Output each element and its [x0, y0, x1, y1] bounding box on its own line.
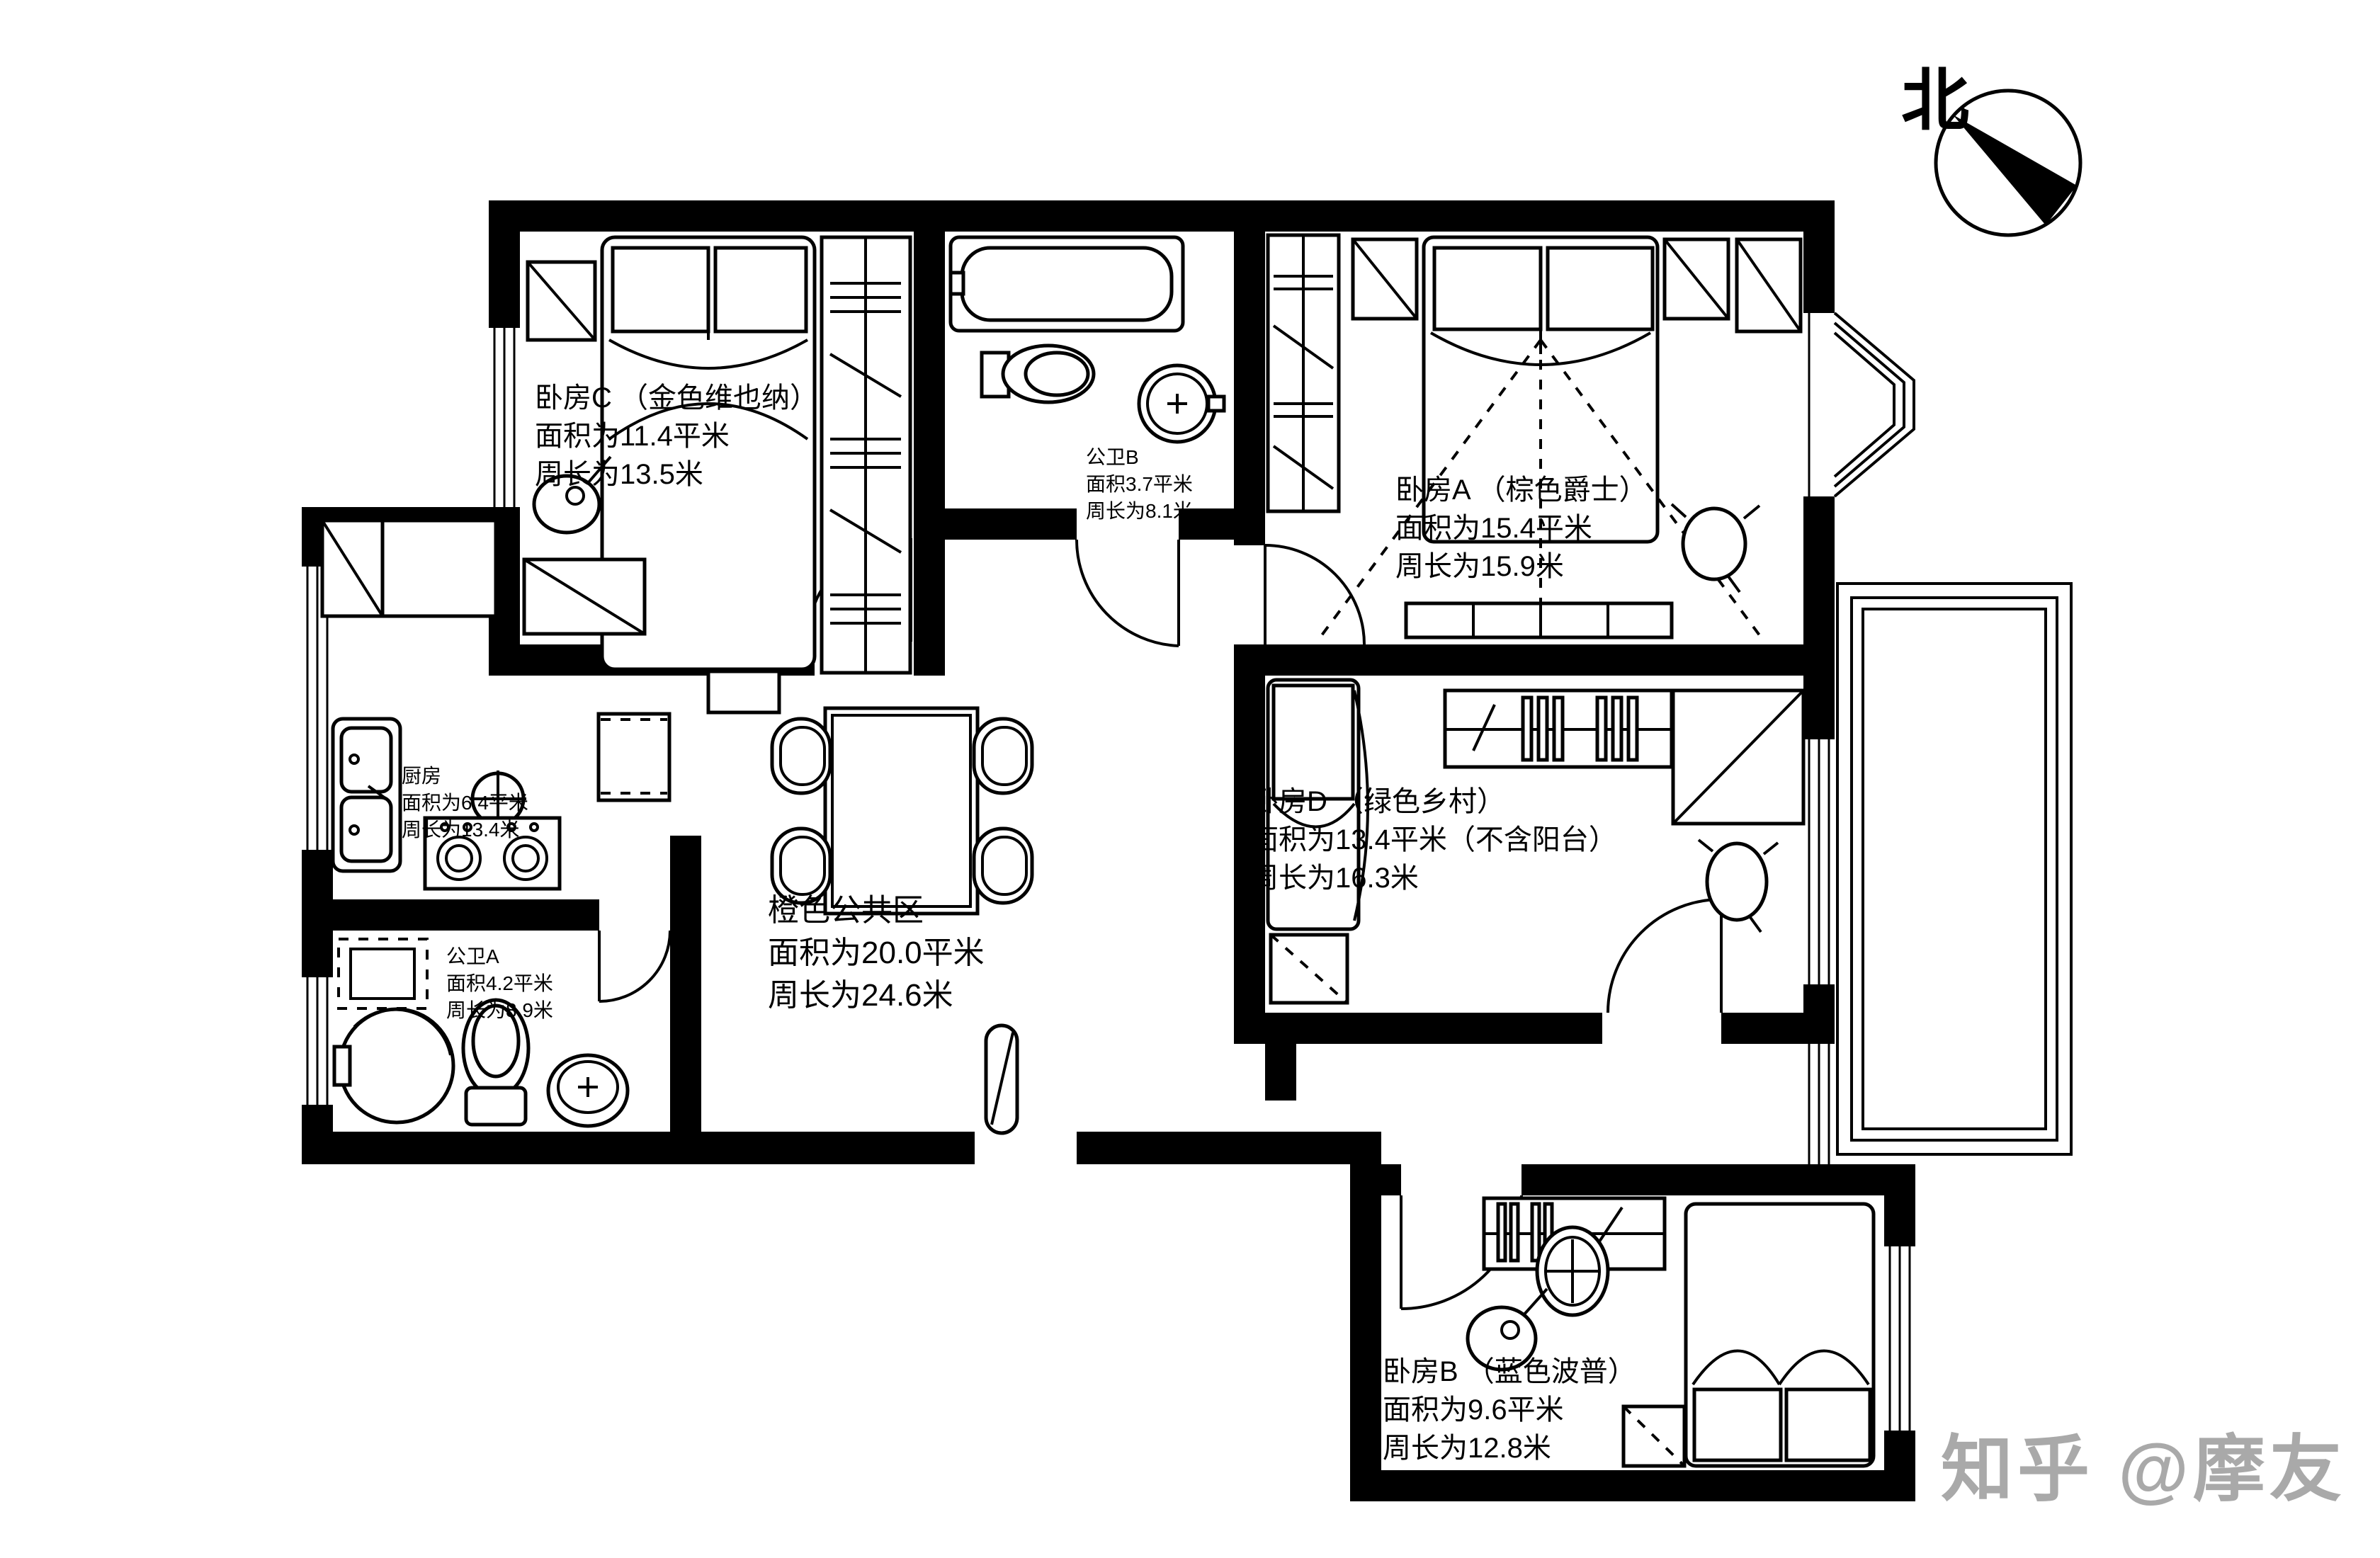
bathtub [951, 237, 1183, 331]
common-name: 橙色公共区 [768, 893, 924, 928]
wall-segment [670, 899, 701, 1164]
nightstand [1623, 1406, 1684, 1466]
bedroom-d-label: 卧房D （绿色乡村） 面积为13.4平米（不含阳台） 周长为16.3米 [1250, 786, 1617, 894]
counter [382, 521, 496, 616]
window-bedroom-b-right [1884, 1246, 1915, 1431]
bedroom-c-name: 卧房C （金色维也纳） [535, 382, 818, 414]
nightstand [528, 262, 595, 340]
wash-basin [1139, 365, 1224, 442]
wall-segment [302, 1132, 701, 1164]
bedroom-a-perimeter: 周长为15.9米 [1395, 551, 1564, 582]
bath-a-perimeter: 周长为8.9米 [446, 999, 553, 1021]
wall-segment [1350, 1132, 1381, 1501]
wall-segment [914, 200, 945, 676]
bedroom-a-name: 卧房A （棕色爵士） [1395, 474, 1648, 506]
window-hall-balcony [1803, 1044, 1835, 1164]
dining-chair [772, 829, 830, 903]
bedroom-b-area: 面积为9.6平米 [1383, 1394, 1564, 1426]
north-label: 北 [1901, 63, 1969, 139]
wall-segment [1381, 1164, 1401, 1195]
bedroom-c-area: 面积为11.4平米 [535, 421, 730, 452]
bath-b-name: 公卫B [1086, 446, 1139, 468]
wall-segment [1234, 644, 1835, 676]
common-area-furniture [708, 671, 1032, 914]
nightstand [1271, 935, 1347, 1003]
nightstand [1665, 239, 1728, 319]
desk [524, 559, 645, 634]
toilet [982, 346, 1094, 402]
bath-a-name: 公卫A [446, 945, 499, 967]
bath-b-perimeter: 周长为8.1米 [1086, 500, 1193, 522]
bay-window [1803, 313, 1914, 496]
chair [1672, 504, 1759, 592]
wardrobe [1268, 235, 1339, 511]
shower-tub [334, 1009, 453, 1122]
wall-segment [670, 836, 701, 899]
bedroom-b-perimeter: 周长为12.8米 [1383, 1433, 1551, 1464]
wall-segment [1803, 200, 1835, 313]
compass-needle-icon [1953, 115, 2077, 225]
kitchen-sink [333, 719, 400, 871]
dining-chair [974, 719, 1032, 793]
door-entrance [986, 1025, 1017, 1133]
wash-basin [548, 1055, 628, 1126]
bedroom-b-name: 卧房B （蓝色波普） [1383, 1356, 1636, 1387]
common-area-text: 面积为20.0平米 [768, 936, 985, 970]
dining-chair [974, 829, 1032, 903]
bedroom-c-furniture [524, 237, 910, 673]
kitchen-perimeter: 周长为13.4米 [402, 819, 520, 841]
corner-cabinet [1737, 239, 1801, 331]
bedroom-d-perimeter: 周长为16.3米 [1250, 863, 1419, 894]
bath-a-label: 公卫A 面积4.2平米 周长为8.9米 [446, 945, 553, 1021]
door-bedroom-a [1265, 545, 1364, 644]
bath-b-fixtures [951, 237, 1224, 442]
wall-segment [1265, 1044, 1296, 1101]
watermark-text: 知乎 @摩友 [1941, 1429, 2346, 1510]
bedroom-b-label: 卧房B （蓝色波普） 面积为9.6平米 周长为12.8米 [1383, 1356, 1636, 1464]
wall-segment [1521, 1164, 1884, 1195]
bedroom-b-furniture [1468, 1198, 1874, 1466]
wall-segment [1234, 200, 1265, 545]
wall-segment [302, 899, 599, 931]
single-bed [1686, 1204, 1874, 1466]
wall-segment [489, 200, 1835, 232]
corner-desk [1673, 690, 1803, 824]
dining-chair [772, 719, 830, 793]
window-bedroom-c-left [489, 328, 520, 507]
wall-cabinet [708, 671, 779, 712]
bedroom-a-area: 面积为15.4平米 [1395, 513, 1592, 544]
bedroom-d-area: 面积为13.4平米（不含阳台） [1250, 824, 1617, 855]
door-bedroom-d [1608, 899, 1721, 1013]
fan-table [1537, 1227, 1608, 1315]
dresser [1406, 603, 1672, 637]
wardrobe [822, 237, 910, 673]
wall-segment [670, 1132, 975, 1164]
wall-segment [1350, 1470, 1915, 1501]
kitchen-name: 厨房 [402, 765, 441, 787]
chair [1699, 840, 1778, 932]
bedroom-d-name: 卧房D （绿色乡村） [1250, 786, 1505, 817]
bedroom-c-perimeter: 周长为13.5米 [535, 459, 703, 490]
wall-segment [489, 200, 520, 328]
bath-a-area: 面积4.2平米 [446, 972, 553, 994]
washing-machine [339, 939, 427, 1008]
common-perimeter: 周长为24.6米 [768, 978, 953, 1013]
bath-b-area: 面积3.7平米 [1086, 473, 1193, 495]
window-bath-a-left [302, 977, 333, 1105]
desk [1445, 690, 1672, 767]
wall-segment [1234, 1013, 1602, 1044]
door-bath-a [599, 931, 670, 1001]
compass: 北 [1901, 63, 2080, 235]
floor-plan-page: 卧房C （金色维也纳） 面积为11.4平米 周长为13.5米 公卫B 面积3.7… [0, 0, 2380, 1558]
corner-cabinet [322, 521, 382, 616]
wall-segment [1803, 496, 1835, 676]
wall-segment [945, 508, 1077, 540]
wall-segment [1077, 1132, 1350, 1164]
floor-plan-canvas: 卧房C （金色维也纳） 面积为11.4平米 周长为13.5米 公卫B 面积3.7… [0, 0, 2380, 1558]
window-bedroom-d-right [1803, 739, 1835, 984]
balcony [1837, 584, 2071, 1154]
dining-table [825, 708, 977, 914]
nightstand [1353, 239, 1417, 319]
wall-segment [1234, 676, 1265, 1044]
bath-b-label: 公卫B 面积3.7平米 周长为8.1米 [1086, 446, 1193, 522]
door-bath-b [1077, 540, 1179, 646]
kitchen-area: 面积为6.4平米 [402, 792, 528, 814]
refrigerator [599, 714, 669, 800]
